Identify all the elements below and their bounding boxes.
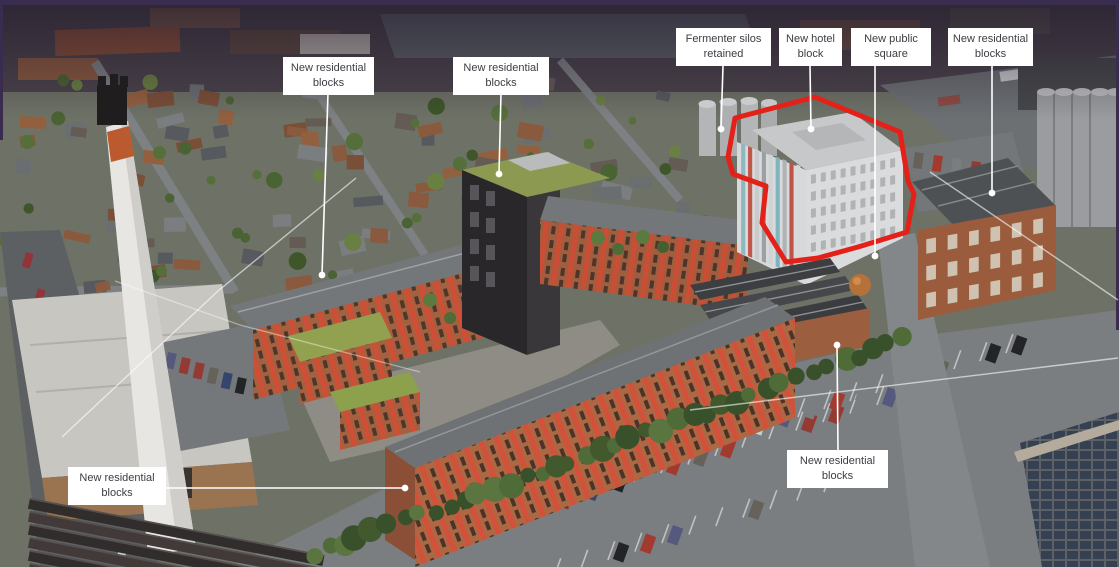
callout-n-residential: New residential blocks — [453, 57, 549, 95]
callout-text: New residential blocks — [951, 32, 1030, 62]
kiln-dome-highlight — [853, 277, 861, 285]
callout-sw-residential: New residential blocks — [68, 467, 166, 505]
leader-hotel-block — [810, 66, 811, 129]
leader-s-residential — [837, 345, 838, 450]
callout-text: New hotel block — [782, 32, 839, 62]
callout-fermenter-silos: Fermenter silos retained — [676, 28, 771, 66]
callout-hotel-block: New hotel block — [779, 28, 842, 66]
callout-text: Fermenter silos retained — [679, 32, 768, 62]
callout-s-residential: New residential blocks — [787, 450, 888, 488]
callout-text: New residential blocks — [456, 61, 546, 91]
callout-public-square: New public square — [851, 28, 931, 66]
callout-text: New residential blocks — [71, 471, 163, 501]
aerial-rendering — [0, 0, 1119, 567]
callout-ne-residential: New residential blocks — [948, 28, 1033, 66]
callout-text: New public square — [854, 32, 928, 62]
callout-nw-residential: New residential blocks — [283, 57, 374, 95]
callout-text: New residential blocks — [286, 61, 371, 91]
aerial-masterplan-view: New residential blocks New residential b… — [0, 0, 1119, 567]
kiln-dome — [849, 274, 871, 296]
callout-text: New residential blocks — [790, 454, 885, 484]
